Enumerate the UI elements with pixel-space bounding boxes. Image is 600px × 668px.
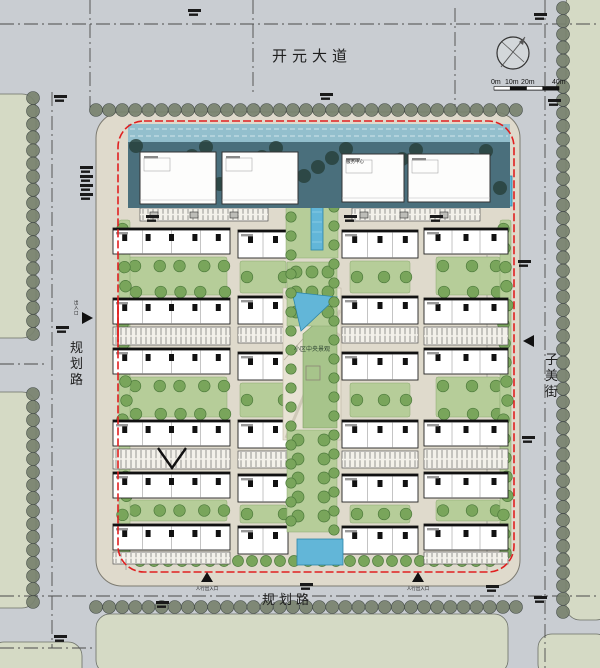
tree-icon	[275, 556, 286, 567]
street-tree-icon	[27, 262, 40, 275]
tree-icon	[129, 260, 141, 272]
street-tree-icon	[27, 288, 40, 301]
street-tree-icon	[431, 601, 444, 614]
tree-icon	[286, 478, 296, 488]
street-tree-icon	[142, 601, 155, 614]
tree-icon	[154, 260, 166, 272]
tree-icon	[286, 231, 296, 241]
street-tree-icon	[557, 500, 570, 513]
tree-icon	[121, 395, 133, 407]
street-tree-icon	[234, 601, 247, 614]
street-tree-icon	[27, 183, 40, 196]
street-tree-icon	[286, 104, 299, 117]
scale-bar-segment	[510, 87, 526, 91]
street-tree-icon	[27, 157, 40, 170]
scale-tick-20: 20m	[521, 79, 535, 86]
tree-icon	[329, 487, 339, 497]
street-tree-icon	[557, 369, 570, 382]
street-tree-icon	[27, 440, 40, 453]
pedestrian-entrance-label-2: 人行出入口	[407, 585, 430, 592]
tree-icon	[498, 509, 510, 521]
master-plan-drawing: 开元大道 规划路 子美街 规划路 0m 10m 20m 40m 小区中央景观 服…	[0, 0, 600, 668]
street-tree-icon	[365, 601, 378, 614]
street-tree-icon	[27, 301, 40, 314]
tree-icon	[401, 556, 412, 567]
tree-icon	[311, 160, 325, 174]
tree-icon	[219, 408, 231, 420]
street-tree-icon	[557, 474, 570, 487]
street-tree-icon	[365, 104, 378, 117]
street-tree-icon	[142, 104, 155, 117]
tree-icon	[155, 286, 167, 298]
street-tree-icon	[247, 601, 260, 614]
tree-icon	[318, 491, 330, 503]
street-tree-icon	[557, 277, 570, 290]
tree-icon	[261, 556, 272, 567]
street-tree-icon	[326, 601, 339, 614]
street-tree-icon	[27, 557, 40, 570]
street-tree-icon	[457, 601, 470, 614]
street-tree-icon	[27, 518, 40, 531]
scale-tick-10: 10m	[505, 79, 519, 86]
commercial-strip	[128, 124, 510, 208]
west-entrance-label: 出入口	[74, 299, 79, 316]
street-tree-icon	[557, 198, 570, 211]
tree-icon	[351, 508, 363, 520]
street-tree-icon	[557, 606, 570, 619]
tree-icon	[129, 505, 141, 517]
street-tree-icon	[27, 583, 40, 596]
street-tree-icon	[90, 601, 103, 614]
tree-icon	[400, 394, 412, 406]
utility-box	[360, 212, 368, 218]
tree-icon	[297, 169, 311, 183]
street-tree-icon	[27, 223, 40, 236]
tree-icon	[378, 271, 390, 283]
street-tree-icon	[557, 579, 570, 592]
tree-icon	[400, 271, 412, 283]
street-tree-icon	[27, 275, 40, 288]
street-tree-icon	[27, 492, 40, 505]
street-tree-icon	[470, 104, 483, 117]
scale-bar-segment	[494, 87, 510, 91]
street-tree-icon	[208, 601, 221, 614]
tree-icon	[437, 505, 449, 517]
tree-icon	[286, 307, 296, 317]
tree-icon	[286, 440, 296, 450]
parcel	[0, 642, 82, 668]
tree-icon	[174, 380, 186, 392]
right-road-label: 子美街	[545, 352, 558, 399]
street-tree-icon	[557, 330, 570, 343]
street-tree-icon	[27, 196, 40, 209]
street-tree-icon	[557, 566, 570, 579]
street-tree-icon	[313, 601, 326, 614]
street-tree-icon	[181, 601, 194, 614]
street-tree-icon	[103, 104, 116, 117]
tree-icon	[175, 408, 187, 420]
parcel	[566, 0, 600, 620]
tree-icon	[130, 408, 142, 420]
tree-icon	[318, 434, 330, 446]
tree-icon	[306, 266, 318, 278]
south-pool	[297, 539, 343, 565]
utility-box	[400, 212, 408, 218]
street-tree-icon	[27, 388, 40, 401]
street-tree-icon	[129, 104, 142, 117]
tree-icon	[437, 380, 449, 392]
street-tree-icon	[557, 133, 570, 146]
street-tree-icon	[470, 601, 483, 614]
street-tree-icon	[557, 54, 570, 67]
street-tree-icon	[313, 104, 326, 117]
top-road-label: 开元大道	[272, 48, 352, 65]
tree-icon	[198, 380, 210, 392]
street-tree-icon	[557, 540, 570, 553]
tree-icon	[329, 278, 339, 288]
street-tree-icon	[418, 601, 431, 614]
street-tree-icon	[405, 601, 418, 614]
commercial-building	[140, 152, 216, 204]
tree-icon	[119, 261, 131, 273]
tree-icon	[501, 280, 513, 292]
street-tree-icon	[557, 120, 570, 133]
street-tree-icon	[27, 505, 40, 518]
street-tree-icon	[27, 570, 40, 583]
tree-icon	[329, 506, 339, 516]
tree-icon	[400, 508, 412, 520]
tree-icon	[438, 408, 450, 420]
street-tree-icon	[27, 144, 40, 157]
street-tree-icon	[557, 185, 570, 198]
tree-icon	[329, 430, 339, 440]
tree-icon	[218, 380, 230, 392]
street-tree-icon	[444, 601, 457, 614]
tree-icon	[351, 271, 363, 283]
street-tree-icon	[27, 118, 40, 131]
commercial-building	[222, 152, 298, 204]
utility-box	[230, 212, 238, 218]
tree-icon	[329, 449, 339, 459]
tree-icon	[329, 240, 339, 250]
street-tree-icon	[557, 225, 570, 238]
tree-icon	[194, 286, 206, 298]
tree-icon	[318, 472, 330, 484]
street-tree-icon	[234, 104, 247, 117]
street-tree-icon	[27, 427, 40, 440]
tree-icon	[174, 260, 186, 272]
tree-icon	[500, 261, 512, 273]
tree-icon	[286, 459, 296, 469]
tree-icon	[329, 411, 339, 421]
street-tree-icon	[352, 601, 365, 614]
tree-icon	[286, 364, 296, 374]
tree-icon	[198, 505, 210, 517]
tree-icon	[502, 395, 514, 407]
street-tree-icon	[483, 601, 496, 614]
scale-tick-40: 40m	[552, 79, 566, 86]
street-tree-icon	[444, 104, 457, 117]
street-tree-icon	[557, 382, 570, 395]
street-tree-icon	[339, 601, 352, 614]
street-tree-icon	[483, 104, 496, 117]
tree-icon	[154, 380, 166, 392]
street-tree-icon	[300, 104, 313, 117]
street-tree-icon	[557, 514, 570, 527]
tree-icon	[129, 139, 143, 153]
tree-icon	[493, 181, 507, 195]
street-tree-icon	[557, 409, 570, 422]
street-tree-icon	[27, 314, 40, 327]
street-tree-icon	[247, 104, 260, 117]
tree-icon	[329, 354, 339, 364]
tree-icon	[155, 408, 167, 420]
compass-icon	[497, 37, 529, 69]
street-tree-icon	[557, 435, 570, 448]
tree-icon	[218, 260, 230, 272]
tree-icon	[466, 260, 478, 272]
parcel	[538, 634, 600, 668]
street-tree-icon	[378, 104, 391, 117]
tree-icon	[467, 286, 479, 298]
tree-icon	[286, 516, 296, 526]
street-tree-icon	[116, 104, 129, 117]
tree-icon	[120, 280, 132, 292]
tree-icon	[286, 497, 296, 507]
street-tree-icon	[221, 601, 234, 614]
street-tree-icon	[557, 107, 570, 120]
street-tree-icon	[27, 131, 40, 144]
scale-tick-0: 0m	[491, 79, 501, 86]
street-tree-icon	[557, 553, 570, 566]
street-tree-icon	[208, 104, 221, 117]
left-road-label: 规划路	[70, 340, 83, 387]
tree-icon	[378, 508, 390, 520]
street-tree-icon	[557, 317, 570, 330]
street-tree-icon	[431, 104, 444, 117]
street-tree-icon	[496, 104, 509, 117]
tree-icon	[174, 505, 186, 517]
street-tree-icon	[27, 453, 40, 466]
street-tree-icon	[90, 104, 103, 117]
street-tree-icon	[273, 104, 286, 117]
tree-icon	[218, 505, 230, 517]
tree-icon	[120, 376, 132, 388]
tree-icon	[233, 556, 244, 567]
street-tree-icon	[557, 251, 570, 264]
tree-icon	[345, 556, 356, 567]
street-tree-icon	[557, 527, 570, 540]
street-tree-icon	[195, 601, 208, 614]
tree-icon	[501, 376, 513, 388]
street-tree-icon	[557, 422, 570, 435]
street-tree-icon	[510, 601, 523, 614]
street-tree-icon	[557, 159, 570, 172]
tree-icon	[329, 525, 339, 535]
street-tree-icon	[405, 104, 418, 117]
tree-icon	[329, 316, 339, 326]
commercial-building	[408, 154, 490, 202]
street-tree-icon	[27, 544, 40, 557]
scale-bar-segment	[527, 87, 543, 91]
tree-icon	[387, 556, 398, 567]
street-tree-icon	[557, 28, 570, 41]
street-tree-icon	[557, 15, 570, 28]
tree-icon	[359, 556, 370, 567]
street-tree-icon	[352, 104, 365, 117]
tree-icon	[438, 286, 450, 298]
utility-box	[190, 212, 198, 218]
street-tree-icon	[378, 601, 391, 614]
street-tree-icon	[339, 104, 352, 117]
street-tree-icon	[27, 596, 40, 609]
tree-icon	[318, 510, 330, 522]
street-tree-icon	[557, 172, 570, 185]
tree-icon	[378, 394, 390, 406]
street-tree-icon	[27, 236, 40, 249]
service-center-label: 服务中心	[346, 158, 364, 165]
tree-icon	[329, 335, 339, 345]
tree-icon	[329, 259, 339, 269]
street-tree-icon	[457, 104, 470, 117]
street-tree-icon	[557, 2, 570, 15]
street-tree-icon	[27, 479, 40, 492]
tree-icon	[286, 212, 296, 222]
tree-icon	[373, 556, 384, 567]
street-tree-icon	[391, 104, 404, 117]
tree-icon	[286, 269, 296, 279]
tree-icon	[241, 394, 253, 406]
street-tree-icon	[129, 601, 142, 614]
street-tree-icon	[27, 249, 40, 262]
tree-icon	[329, 297, 339, 307]
street-tree-icon	[557, 41, 570, 54]
street-tree-icon	[557, 356, 570, 369]
tree-icon	[466, 505, 478, 517]
tree-icon	[318, 453, 330, 465]
street-tree-icon	[418, 104, 431, 117]
street-tree-icon	[557, 448, 570, 461]
street-tree-icon	[181, 104, 194, 117]
street-tree-icon	[27, 105, 40, 118]
street-tree-icon	[103, 601, 116, 614]
street-tree-icon	[116, 601, 129, 614]
street-tree-icon	[510, 104, 523, 117]
street-tree-icon	[168, 601, 181, 614]
street-tree-icon	[195, 104, 208, 117]
street-tree-icon	[557, 343, 570, 356]
street-tree-icon	[557, 395, 570, 408]
tree-icon	[329, 392, 339, 402]
tree-icon	[286, 250, 296, 260]
street-tree-icon	[27, 328, 40, 341]
tree-icon	[219, 286, 231, 298]
tree-icon	[351, 394, 363, 406]
tree-icon	[247, 556, 258, 567]
street-tree-icon	[168, 104, 181, 117]
street-tree-icon	[557, 238, 570, 251]
tree-icon	[241, 508, 253, 520]
street-tree-icon	[27, 170, 40, 183]
street-tree-icon	[27, 210, 40, 223]
tree-icon	[329, 468, 339, 478]
street-tree-icon	[557, 264, 570, 277]
tree-icon	[175, 286, 187, 298]
street-tree-icon	[260, 104, 273, 117]
tree-icon	[286, 383, 296, 393]
bottom-road-label: 规划路	[262, 592, 313, 607]
street-tree-icon	[221, 104, 234, 117]
tree-icon	[325, 151, 339, 165]
tree-icon	[329, 373, 339, 383]
tree-icon	[466, 380, 478, 392]
tree-icon	[286, 326, 296, 336]
tree-icon	[154, 505, 166, 517]
tree-icon	[194, 408, 206, 420]
central-landscape-label: 小区中央景观	[294, 345, 330, 353]
parcel	[96, 614, 508, 668]
street-tree-icon	[496, 601, 509, 614]
tree-icon	[467, 408, 479, 420]
street-tree-icon	[557, 592, 570, 605]
street-tree-icon	[326, 104, 339, 117]
street-tree-icon	[557, 461, 570, 474]
street-tree-icon	[27, 414, 40, 427]
tree-icon	[286, 421, 296, 431]
street-tree-icon	[155, 104, 168, 117]
street-tree-icon	[391, 601, 404, 614]
tree-icon	[286, 288, 296, 298]
tree-icon	[241, 271, 253, 283]
street-tree-icon	[27, 401, 40, 414]
street-tree-icon	[27, 466, 40, 479]
street-tree-icon	[557, 304, 570, 317]
scale-bar-segment	[543, 87, 559, 91]
tree-icon	[329, 221, 339, 231]
tree-icon	[130, 286, 142, 298]
pedestrian-entrance-label-1: 人行出入口	[196, 585, 219, 592]
tree-icon	[198, 260, 210, 272]
street-tree-icon	[27, 531, 40, 544]
street-tree-icon	[27, 92, 40, 105]
street-tree-icon	[557, 146, 570, 159]
glass-canopy	[128, 124, 510, 142]
tree-icon	[286, 402, 296, 412]
site-plan-page: 开元大道 规划路 子美街 规划路 0m 10m 20m 40m 小区中央景观 服…	[0, 0, 600, 668]
street-tree-icon	[557, 487, 570, 500]
street-tree-icon	[557, 212, 570, 225]
street-tree-icon	[557, 290, 570, 303]
tree-icon	[437, 260, 449, 272]
